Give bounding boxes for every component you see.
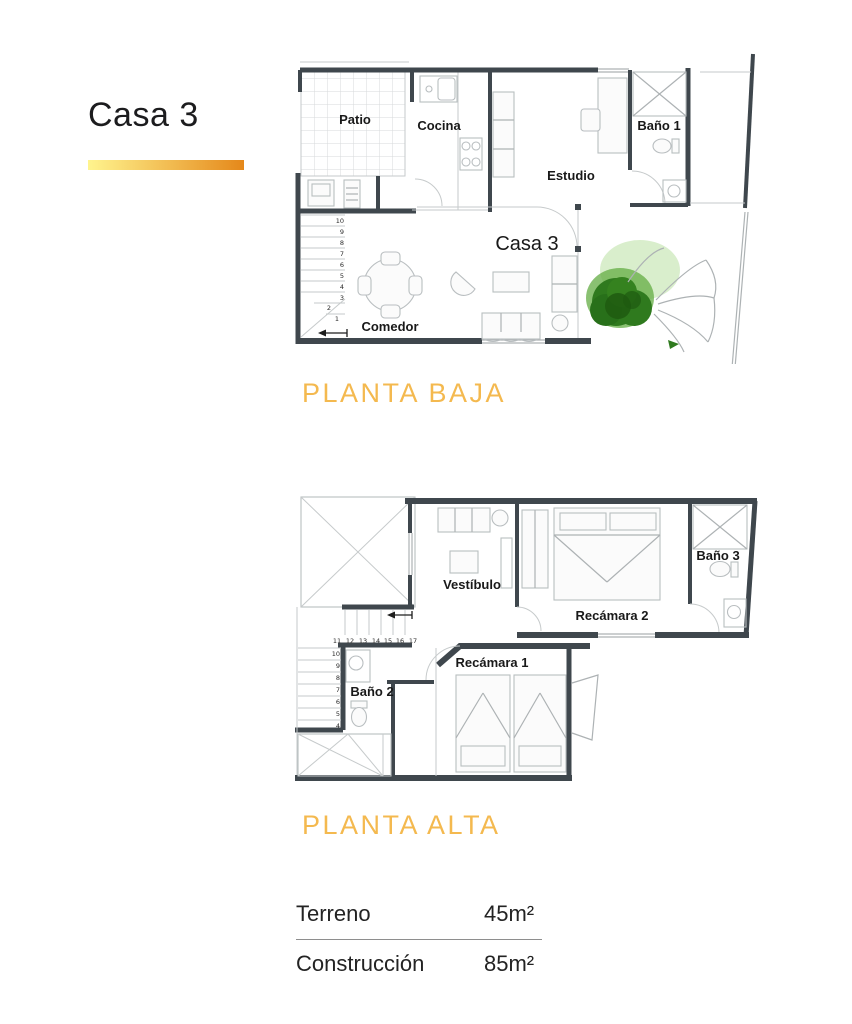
summary-row-construccion: Construcción 85m² (296, 940, 542, 977)
room-label-cocina: Cocina (417, 118, 461, 133)
shelf-icon (501, 538, 512, 588)
stair-number: 14 (372, 637, 380, 645)
armchair-icon (451, 272, 475, 295)
stair-number: 6 (340, 261, 344, 269)
toilet-icon (653, 139, 671, 153)
stair-number: 7 (340, 250, 344, 258)
toilet-icon (710, 562, 730, 577)
sink-icon (668, 185, 680, 197)
room-vestibulo: Vestíbulo (438, 508, 512, 592)
room-label-patio: Patio (339, 112, 371, 127)
room-label-recamara2: Recámara 2 (576, 608, 649, 623)
window-post (575, 204, 581, 210)
upper-floor-caption: PLANTA ALTA (302, 810, 501, 841)
stair-number: 6 (336, 698, 340, 706)
summary-label: Construcción (296, 951, 484, 977)
stair-direction-arrow (318, 329, 347, 337)
stair-number: 10 (332, 650, 340, 658)
void-area (301, 497, 415, 607)
desk-icon (598, 78, 627, 153)
exterior-wall-top (408, 69, 629, 72)
stair-number: 7 (336, 686, 340, 694)
terrace-outline (572, 675, 598, 740)
room-recamara1: Recámara 1 (436, 648, 598, 776)
stair-number: 1 (335, 315, 339, 323)
stair-number: 15 (384, 637, 392, 645)
sofa-icon (438, 508, 490, 532)
stair-number: 10 (336, 217, 344, 225)
ottoman-icon (450, 551, 478, 573)
upper-floor-plan: Vestíbulo Recámara 2 Baño 3 11 12 13 14 … (288, 486, 768, 806)
stair-number: 4 (336, 722, 340, 730)
stair-number: 9 (340, 228, 344, 236)
room-patio: Patio (300, 62, 409, 176)
ground-floor-plan: Patio Cocina (288, 52, 768, 364)
room-label-bano1: Baño 1 (637, 118, 680, 133)
round-table-icon (492, 510, 508, 526)
coffee-table-icon (493, 272, 529, 292)
room-bano2: Baño 2 (346, 650, 394, 727)
summary-value: 45m² (484, 901, 542, 927)
sink-icon (349, 656, 363, 670)
summary-value: 85m² (484, 951, 542, 977)
room-label-vestibulo: Vestíbulo (443, 577, 501, 592)
wardrobe-icon (493, 92, 514, 177)
room-bano1: Baño 1 (630, 68, 688, 206)
room-label-bano3: Baño 3 (696, 548, 739, 563)
laundry-area (296, 173, 442, 211)
room-estudio: Estudio (493, 78, 627, 183)
recamara2-door-swing (517, 607, 541, 631)
double-bed-icon (554, 508, 660, 600)
sofa-icon (482, 313, 540, 339)
summary-label: Terreno (296, 901, 484, 927)
stair-number: 11 (333, 637, 341, 645)
dining-table-icon (364, 259, 416, 311)
stair-number: 12 (346, 637, 354, 645)
stair-number: 9 (336, 662, 340, 670)
stair-number: 16 (396, 637, 404, 645)
room-label-estudio: Estudio (547, 168, 595, 183)
site-boundary (690, 54, 753, 364)
stair-number: 3 (340, 294, 344, 302)
lounge-area (451, 256, 577, 342)
side-table-icon (552, 315, 568, 331)
patio-door-swing (415, 179, 442, 206)
stair-number: 4 (340, 283, 344, 291)
dining-area: Comedor (358, 252, 422, 334)
stair-number: 2 (327, 304, 331, 312)
room-label-recamara1: Recámara 1 (456, 655, 529, 670)
area-summary: Terreno 45m² Construcción 85m² (296, 901, 542, 977)
stair-number: 13 (359, 637, 367, 645)
chair-icon (581, 109, 600, 131)
stair-number: 8 (340, 239, 344, 247)
toilet-icon (352, 708, 367, 727)
stairs-ground: 10 9 8 7 6 5 4 3 2 1 (301, 215, 347, 337)
stair-number: 5 (340, 272, 344, 280)
summary-row-terreno: Terreno 45m² (296, 901, 542, 940)
sink-icon (728, 606, 741, 619)
room-recamara2: Recámara 2 (522, 508, 660, 623)
window-post (575, 246, 581, 252)
bathroom-door-swing (632, 171, 665, 204)
room-bano3: Baño 3 (693, 505, 747, 627)
stair-number: 8 (336, 674, 340, 682)
accent-gradient-bar (88, 160, 244, 170)
stair-direction-arrow (387, 611, 412, 619)
stair-number: 5 (336, 710, 340, 718)
bano3-door-swing (690, 604, 719, 633)
unit-label: Casa 3 (495, 233, 558, 255)
roof-area (298, 734, 391, 776)
room-label-comedor: Comedor (361, 319, 418, 334)
stair-number: 17 (409, 637, 417, 645)
ground-floor-caption: PLANTA BAJA (302, 378, 506, 409)
room-label-bano2: Baño 2 (350, 684, 393, 699)
page-title: Casa 3 (88, 96, 199, 135)
room-cocina: Cocina (412, 70, 490, 212)
tree-icon (586, 240, 716, 352)
